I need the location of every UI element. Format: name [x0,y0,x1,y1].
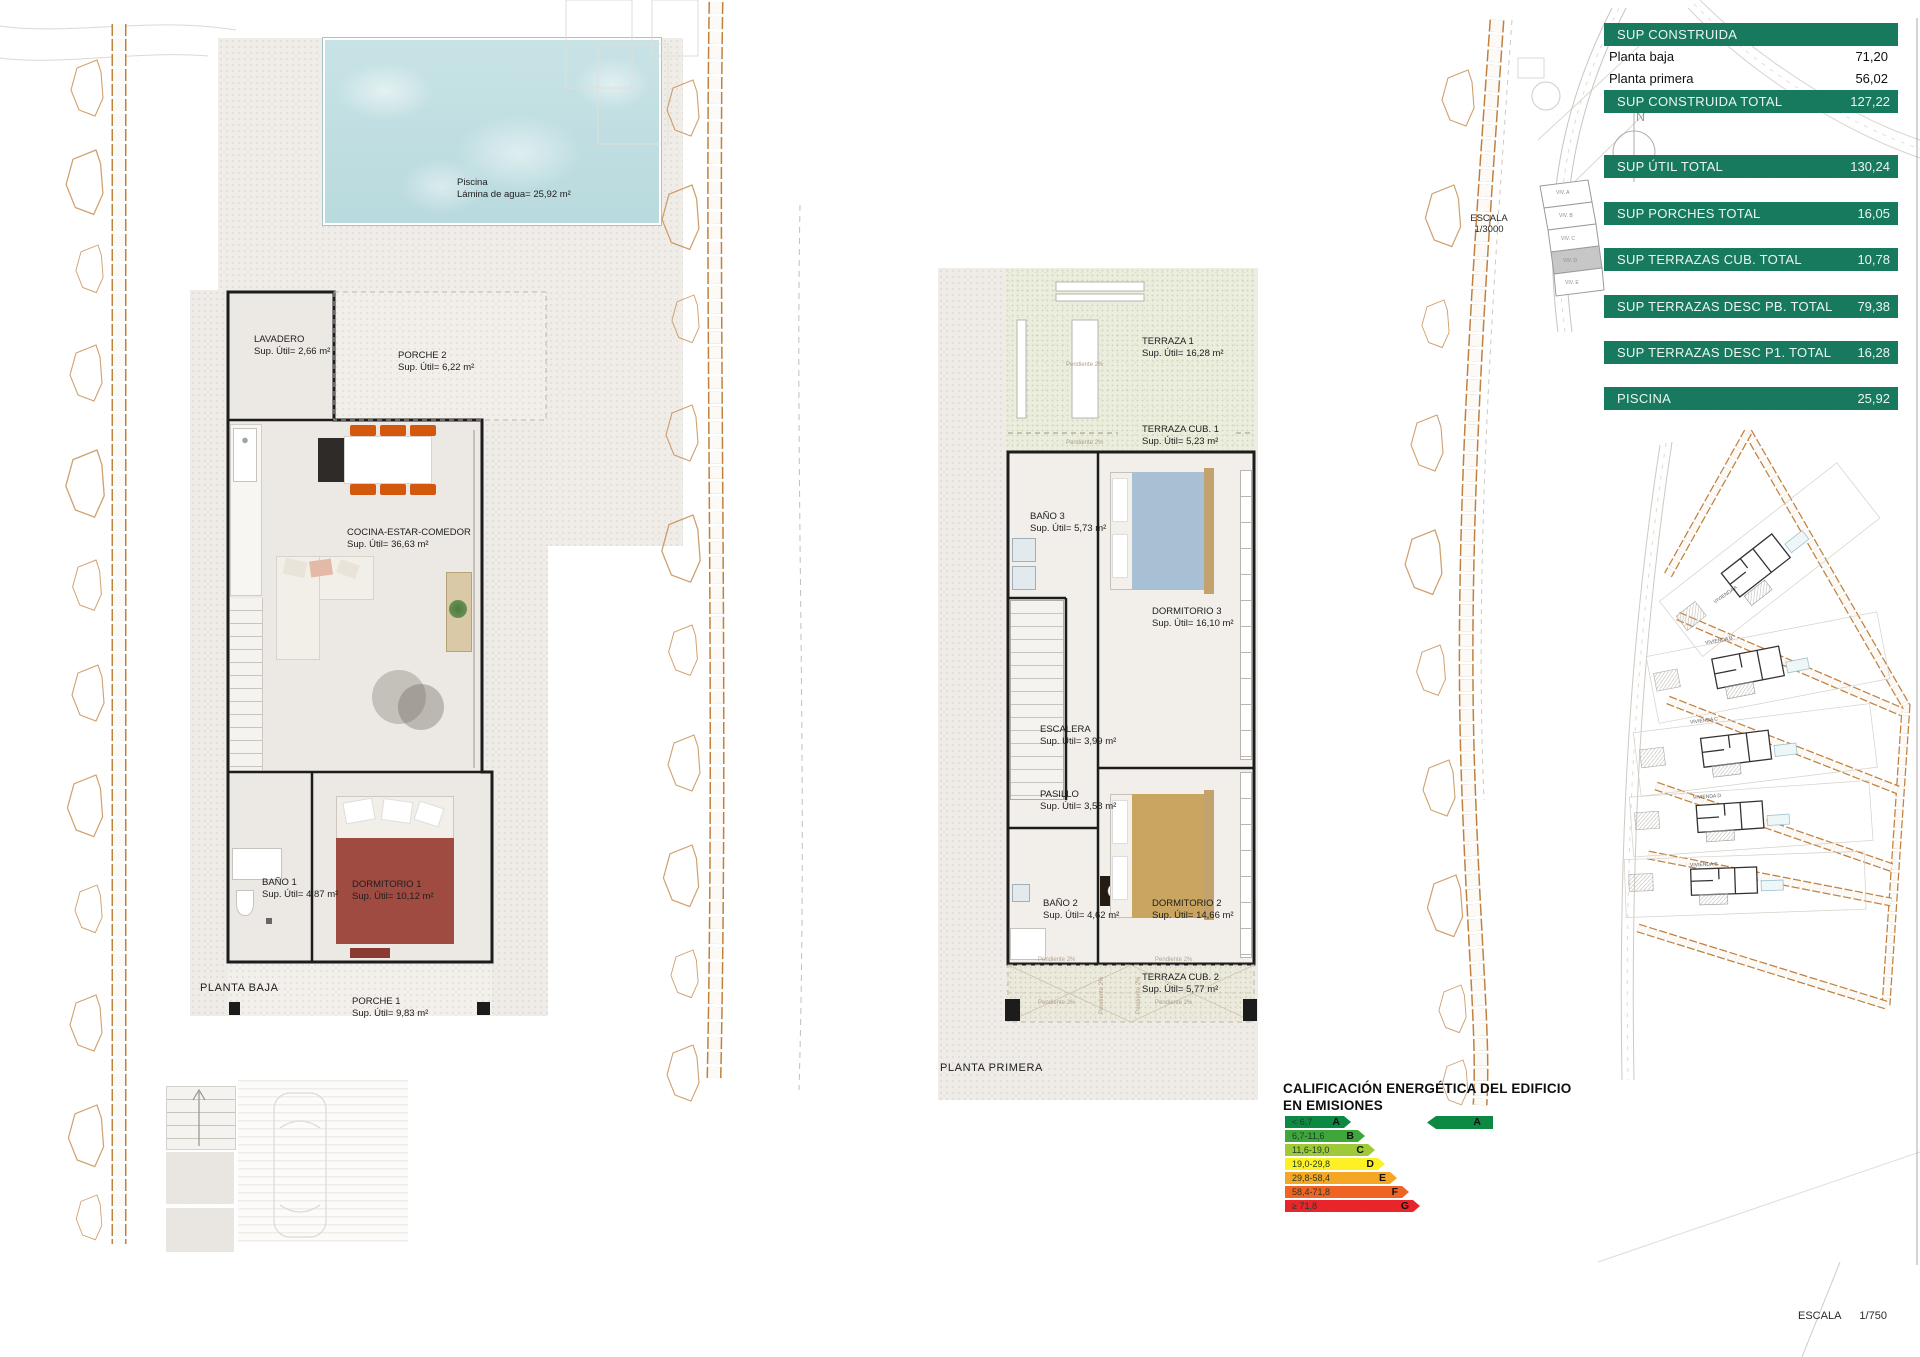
energy-band-f: 58,4-71,8 F [1285,1186,1409,1198]
pendiente-note: Pendiente 2% [1155,957,1192,963]
energy-title-line1: CALIFICACIÓN ENERGÉTICA DEL EDIFICIO [1283,1080,1613,1097]
pool-area: Lámina de agua= 25,92 m² [457,189,571,201]
stair-arrow [193,1090,205,1146]
band-letter: A [1332,1116,1340,1128]
room-name: PASILLO [1040,789,1116,801]
room-label-dormitorio1: DORMITORIO 1 Sup. Útil= 10,12 m² [352,879,434,903]
pendiente-note: Pendiente 2% [1038,957,1075,963]
plant-pot [449,600,467,618]
room-area: Sup. Útil= 36,63 m² [347,539,471,551]
band-letter: E [1379,1172,1386,1184]
band-letter: D [1366,1158,1374,1170]
room-name: BAÑO 1 [262,877,338,889]
room-label-terraza-cub2: TERRAZA CUB. 2 Sup. Útil= 5,77 m² [1142,972,1219,996]
room-name: TERRAZA CUB. 1 [1142,424,1219,436]
key-plot-label-b: VIV. B [1559,213,1573,219]
room-area: Sup. Útil= 4,62 m² [1043,910,1119,922]
sheet-scale-note: ESCALA 1/750 [1798,1310,1887,1322]
pool-name: Piscina [457,177,571,189]
band-letter: G [1401,1200,1409,1212]
wardrobe-dorm3 [1240,470,1252,760]
room-label-escalera: ESCALERA Sup. Útil= 3,99 m² [1040,724,1116,748]
room-label-terraza1: TERRAZA 1 Sup. Útil= 16,28 m² [1142,336,1224,360]
dining-chair [410,425,436,436]
room-area: Sup. Útil= 3,58 m² [1040,801,1116,813]
bath1-toilet [236,890,254,916]
round-rug [398,684,444,730]
car-outline [274,1093,326,1237]
site-house-a [1659,463,1879,657]
room-area: Sup. Útil= 2,66 m² [254,346,330,358]
scale-value: 1/750 [1859,1310,1887,1322]
room-area: Sup. Útil= 16,10 m² [1152,618,1234,630]
sofa-cushion [309,559,333,578]
room-area: Sup. Útil= 5,77 m² [1142,984,1219,996]
bath2-basin [1012,884,1030,902]
room-name: BAÑO 2 [1043,898,1119,910]
energy-title-line2: EN EMISIONES [1283,1097,1613,1114]
room-label-cocina: COCINA-ESTAR-COMEDOR Sup. Útil= 36,63 m² [347,527,471,551]
table-row-planta-baja: Planta baja 71,20 [1604,46,1898,67]
dining-chair [380,484,406,495]
room-area: Sup. Útil= 3,99 m² [1040,736,1116,748]
band-range: ≥ 71,8 [1292,1201,1317,1211]
bar-value: 10,78 [1857,248,1890,271]
band-letter: B [1346,1130,1354,1142]
dining-chair [350,484,376,495]
room-label-porche1: PORCHE 1 Sup. Útil= 9,83 m² [352,996,428,1020]
room-area: Sup. Útil= 5,23 m² [1142,436,1219,448]
table-bar-terrazas-cub-total: SUP TERRAZAS CUB. TOTAL 10,78 [1604,248,1898,271]
plot-boundaries [1638,432,1906,1005]
table-row-planta-primera: Planta primera 56,02 [1604,68,1898,89]
room-name: LAVADERO [254,334,330,346]
pendiente-note: Pendiente 2% [1136,977,1142,1014]
bath1-shower [232,848,282,880]
pool-label: Piscina Lámina de agua= 25,92 m² [457,177,571,201]
room-label-lavadero: LAVADERO Sup. Útil= 2,66 m² [254,334,330,358]
bar-value: 130,24 [1850,155,1890,178]
scale-value: 1/3000 [1460,224,1518,235]
energy-band-g: ≥ 71,8 G [1285,1200,1420,1212]
site-scale-note: ESCALA 1/3000 [1460,213,1518,235]
room-label-bano1: BAÑO 1 Sup. Útil= 4,87 m² [262,877,338,901]
dining-chair [410,484,436,495]
room-area: Sup. Útil= 10,12 m² [352,891,434,903]
room-name: COCINA-ESTAR-COMEDOR [347,527,471,539]
room-name: PORCHE 2 [398,350,474,362]
bed3-pillow [1112,478,1128,522]
room-name: TERRAZA 1 [1142,336,1224,348]
key-plot-label-a: VIV. A [1556,190,1569,196]
room-label-dormitorio3: DORMITORIO 3 Sup. Útil= 16,10 m² [1152,606,1234,630]
scale-label: ESCALA [1798,1310,1841,1322]
room-area: Sup. Útil= 16,28 m² [1142,348,1224,360]
bar-value: 16,05 [1857,202,1890,225]
bar-label: SUP TERRAZAS DESC PB. TOTAL [1617,299,1833,314]
bath3-basin [1012,566,1036,590]
room-label-terraza-cub1: TERRAZA CUB. 1 Sup. Útil= 5,23 m² [1142,424,1219,448]
architectural-sheet: Piscina Lámina de agua= 25,92 m² LAVADER… [0,0,1920,1357]
room-area: Sup. Útil= 14,66 m² [1152,910,1234,922]
band-range: 29,8-58,4 [1292,1173,1330,1183]
room-label-pasillo: PASILLO Sup. Útil= 3,58 m² [1040,789,1116,813]
room-name: BAÑO 3 [1030,511,1106,523]
room-label-porche2: PORCHE 2 Sup. Útil= 6,22 m² [398,350,474,374]
row-value: 56,02 [1855,68,1888,89]
table-bar-piscina: PISCINA 25,92 [1604,387,1898,410]
energy-rating-chart: CALIFICACIÓN ENERGÉTICA DEL EDIFICIO EN … [1283,1080,1613,1114]
key-plot-label-e: VIV. E [1565,280,1579,286]
bar-value: 79,38 [1857,295,1890,318]
kitchen-appliance [233,428,257,482]
room-label-bano2: BAÑO 2 Sup. Útil= 4,62 m² [1043,898,1119,922]
bar-value: 127,22 [1850,90,1890,113]
bed2-pillow [1112,856,1128,900]
band-range: 19,0-29,8 [1292,1159,1330,1169]
table-header: SUP CONSTRUIDA [1604,23,1898,46]
table-bar-porches-total: SUP PORCHES TOTAL 16,05 [1604,202,1898,225]
site-plan [1621,432,1906,1080]
room-name: DORMITORIO 1 [352,879,434,891]
dining-chair [350,425,376,436]
band-range: 6,7-11,6 [1292,1131,1324,1141]
energy-band-b: 6,7-11,6 B [1285,1130,1365,1142]
planta-baja-title: PLANTA BAJA [200,982,279,994]
energy-band-d: 19,0-29,8 D [1285,1158,1385,1170]
bar-label: SUP ÚTIL TOTAL [1617,159,1723,174]
band-letter: F [1392,1186,1398,1198]
interior-stairs-pb [230,598,263,770]
band-range: 58,4-71,8 [1292,1187,1330,1197]
bed3-headboard [1204,468,1214,594]
header-label: SUP CONSTRUIDA [1617,27,1737,42]
row-label: Planta primera [1609,71,1694,86]
bar-label: SUP PORCHES TOTAL [1617,206,1761,221]
room-name: DORMITORIO 2 [1152,898,1234,910]
band-range: 11,6-19,0 [1292,1145,1329,1155]
bath2-shower [1010,928,1046,960]
band-letter: C [1356,1144,1364,1156]
energy-rating-indicator: A [1427,1116,1493,1129]
wardrobe-dorm2 [1240,772,1252,958]
rating-letter: A [1473,1116,1481,1129]
bar-value: 16,28 [1857,341,1890,364]
pendiente-note: Pendiente 2% [1155,1000,1192,1006]
energy-band-a: < 6,7 A [1285,1116,1351,1128]
pendiente-note: Pendiente 2% [1099,977,1105,1014]
bed3-duvet [1132,472,1204,590]
key-plot-label-d: VIV. D [1563,258,1577,264]
room-name: DORMITORIO 3 [1152,606,1234,618]
dining-table [344,436,432,484]
table-bar-util-total: SUP ÚTIL TOTAL 130,24 [1604,155,1898,178]
table-bar-terrazas-desc-p1: SUP TERRAZAS DESC P1. TOTAL 16,28 [1604,341,1898,364]
pendiente-note: Pendiente 2% [1066,362,1103,368]
dining-chair [380,425,406,436]
room-area: Sup. Útil= 9,83 m² [352,1008,428,1020]
energy-band-c: 11,6-19,0 C [1285,1144,1375,1156]
pendiente-note: Pendiente 2% [1038,1000,1075,1006]
kitchen-island [318,438,344,482]
bar-label: SUP TERRAZAS DESC P1. TOTAL [1617,345,1831,360]
room-label-bano3: BAÑO 3 Sup. Útil= 5,73 m² [1030,511,1106,535]
energy-band-e: 29,8-58,4 E [1285,1172,1397,1184]
bed1-bench [350,948,390,958]
site-plot-label-e: VIVIENDA E [1690,862,1718,869]
interior-stairs-p1 [1010,600,1064,800]
row-value: 71,20 [1855,46,1888,67]
bar-value: 25,92 [1857,387,1890,410]
key-plot-label-c: VIV. C [1561,236,1575,242]
planta-primera-title: PLANTA PRIMERA [940,1062,1043,1074]
bath3-basin [1012,538,1036,562]
table-bar-construida-total: SUP CONSTRUIDA TOTAL 127,22 [1604,90,1898,113]
scale-label: ESCALA [1460,213,1518,224]
room-name: TERRAZA CUB. 2 [1142,972,1219,984]
bed1-pillow [381,798,414,824]
floor-drain [266,918,272,924]
room-area: Sup. Útil= 4,87 m² [262,889,338,901]
bar-label: SUP CONSTRUIDA TOTAL [1617,94,1782,109]
pendiente-note: Pendiente 2% [1066,440,1103,446]
room-area: Sup. Útil= 5,73 m² [1030,523,1106,535]
bar-label: PISCINA [1617,391,1671,406]
room-name: ESCALERA [1040,724,1116,736]
table-bar-terrazas-desc-pb: SUP TERRAZAS DESC PB. TOTAL 79,38 [1604,295,1898,318]
room-label-dormitorio2: DORMITORIO 2 Sup. Útil= 14,66 m² [1152,898,1234,922]
room-area: Sup. Útil= 6,22 m² [398,362,474,374]
room-name: PORCHE 1 [352,996,428,1008]
row-label: Planta baja [1609,49,1674,64]
band-range: < 6,7 [1292,1117,1312,1127]
bar-label: SUP TERRAZAS CUB. TOTAL [1617,252,1802,267]
bed3-pillow [1112,534,1128,578]
